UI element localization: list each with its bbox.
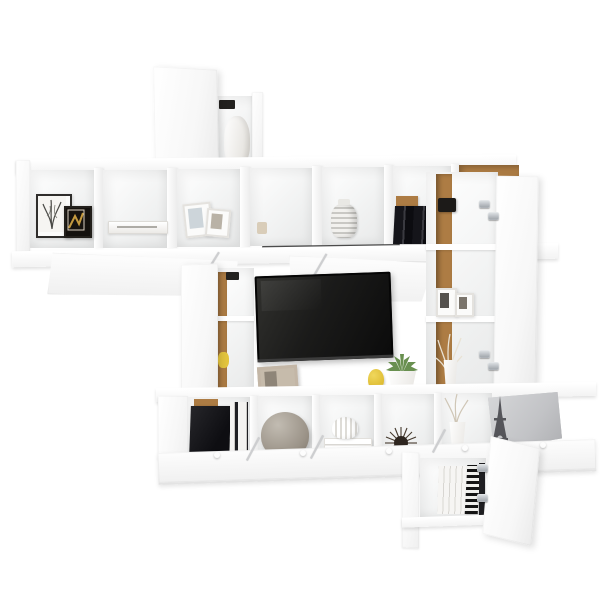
dried-twig-branches (440, 392, 472, 426)
flap-knob (300, 450, 306, 456)
tv-bottom-edge (257, 355, 393, 363)
flat-white-book (108, 221, 168, 234)
divider (94, 168, 103, 248)
frame-art (211, 213, 223, 229)
top-cabinet-door (153, 66, 219, 169)
divider (312, 166, 322, 246)
striped-book (465, 465, 481, 514)
flap-knob (386, 448, 392, 454)
left-column-hinge-dark (226, 272, 239, 280)
frame-photo (459, 297, 467, 309)
hinge (488, 212, 499, 220)
top-cabinet-hinge-dark (219, 100, 235, 109)
camera-object (438, 198, 456, 212)
tv (255, 272, 394, 363)
flap-knob (214, 452, 220, 458)
hinge (488, 362, 499, 370)
dark-books (393, 206, 429, 244)
jar-lid (338, 199, 350, 205)
white-ridged-vase (332, 417, 358, 439)
divider (384, 165, 393, 245)
tv-screen-glare (261, 279, 322, 311)
bottom-shelf-left-end (158, 396, 188, 460)
flap-knob (462, 445, 468, 451)
frame-photo (264, 371, 277, 388)
hinge (479, 350, 490, 358)
yellow-object (218, 352, 229, 368)
divider (240, 167, 250, 247)
product-photo (0, 0, 600, 600)
bottom-cabinet-left-panel (402, 452, 419, 549)
divider (167, 168, 177, 248)
small-frame-bw (436, 288, 457, 317)
right-cabinet-shelf (426, 244, 498, 250)
small-frame-photo (455, 293, 474, 317)
hinge (477, 464, 488, 472)
frame-art (188, 208, 204, 229)
left-column-door (181, 263, 218, 398)
botanical-art (38, 196, 66, 232)
small-beige-item (257, 222, 267, 234)
gold-art (66, 208, 86, 232)
left-column-shelf (216, 316, 254, 321)
left-column-wood (217, 272, 227, 392)
book-spine-text (117, 226, 157, 228)
flap-knob (540, 442, 546, 448)
upper-shelf-left-wall (16, 160, 30, 252)
upper-cube-book (103, 170, 167, 248)
hinge (479, 200, 490, 208)
frame-dark-art (64, 206, 92, 238)
leaning-frame-small (205, 208, 231, 238)
ceramic-jar (331, 204, 357, 238)
frame-photo (440, 293, 449, 308)
right-cabinet-door (494, 176, 539, 391)
bottom-cabinet-door (482, 436, 540, 546)
hinge (477, 494, 488, 502)
white-books (437, 466, 467, 514)
upper-cube-empty (250, 168, 312, 246)
